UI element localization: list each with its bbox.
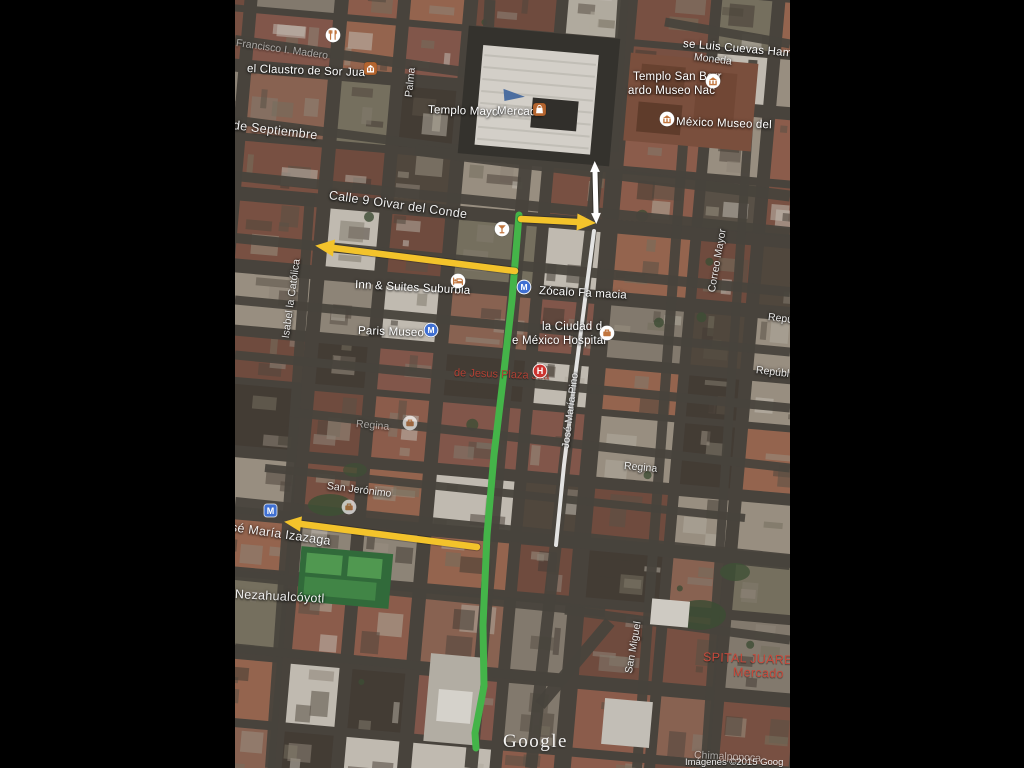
hospital-icon[interactable]: H <box>532 363 548 379</box>
museum-icon[interactable] <box>705 73 721 89</box>
screenshot: Francisco I. Maderoel Claustro de Sor Ju… <box>0 0 1024 768</box>
svg-text:M: M <box>520 282 527 292</box>
map-label-moneda: Moneda <box>693 52 732 67</box>
metro-icon[interactable]: M <box>423 322 439 338</box>
labels-layer: Francisco I. Maderoel Claustro de Sor Ju… <box>235 0 790 768</box>
map-label-mercado[interactable]: Mercado <box>733 666 784 680</box>
map-label-regina: Regina <box>356 419 390 432</box>
museum-icon[interactable] <box>659 111 675 127</box>
map-label-de-septiembre: de Septiembre <box>235 119 318 142</box>
landmark-icon[interactable] <box>341 499 357 515</box>
shopping-icon[interactable] <box>532 102 548 118</box>
svg-text:H: H <box>537 366 544 376</box>
map-label-ardo-museo-nac[interactable]: ardo Museo Nac <box>628 86 715 98</box>
map-label-francisco-i-madero: Francisco I. Madero <box>235 38 328 61</box>
map-label-san-miguel: San Miguel <box>624 621 643 675</box>
map-label-la-ciudad-d[interactable]: la Ciudad d <box>542 322 602 334</box>
letterbox-right <box>790 0 1024 768</box>
map-viewport[interactable]: Francisco I. Maderoel Claustro de Sor Ju… <box>235 0 790 768</box>
map-label-templo-mayor[interactable]: Templo Mayor <box>428 105 503 119</box>
map-label-nezahualc-yotl: Nezahualcóyotl <box>235 588 325 605</box>
map-label-san-jer-nimo: San Jerónimo <box>326 481 392 499</box>
museum-icon[interactable] <box>363 61 379 77</box>
map-label-e-m-xico-hospital[interactable]: e México Hospital <box>512 336 606 348</box>
bar-icon[interactable] <box>494 221 510 237</box>
map-label-regina: Regina <box>624 461 658 474</box>
map-label-s-mar-a-izazaga: sé María Izazaga <box>235 521 332 547</box>
map-label-jos-mar-a-pino: José María Pino <box>561 372 581 449</box>
svg-text:M: M <box>427 325 434 335</box>
map-label-isabel-la-cat-lica: Isabel la Católica <box>281 258 303 339</box>
map-label-paris-museo[interactable]: Paris Museo <box>358 326 424 340</box>
copyright-attribution: Imágenes ©2015 Goog <box>685 757 783 768</box>
map-label-palma: Palma <box>404 67 418 98</box>
svg-text:M: M <box>267 506 275 516</box>
metro-icon[interactable]: M <box>516 279 532 295</box>
metro-icon[interactable]: M <box>263 503 279 519</box>
hotel-icon[interactable] <box>450 273 466 289</box>
map-label-el-claustro-de-sor-jua[interactable]: el Claustro de Sor Jua <box>247 64 366 80</box>
map-label-rep-bl: Repúbl <box>755 365 789 379</box>
landmark-icon[interactable] <box>402 415 418 431</box>
map-label-correo-mayor: Correo Mayor <box>707 228 728 293</box>
landmark-icon[interactable] <box>599 325 615 341</box>
map-label-rep: Repú <box>767 312 790 325</box>
restaurant-icon[interactable] <box>325 27 341 43</box>
google-watermark[interactable]: Google <box>503 731 568 753</box>
map-label-calle-9-oivar-del-conde: Calle 9 Oivar del Conde <box>328 189 468 221</box>
map-label-m-xico-museo-del[interactable]: México Museo del <box>676 117 772 132</box>
map-label-z-calo-fa-macia[interactable]: Zócalo Fa macia <box>539 286 627 302</box>
letterbox-left <box>0 0 235 768</box>
